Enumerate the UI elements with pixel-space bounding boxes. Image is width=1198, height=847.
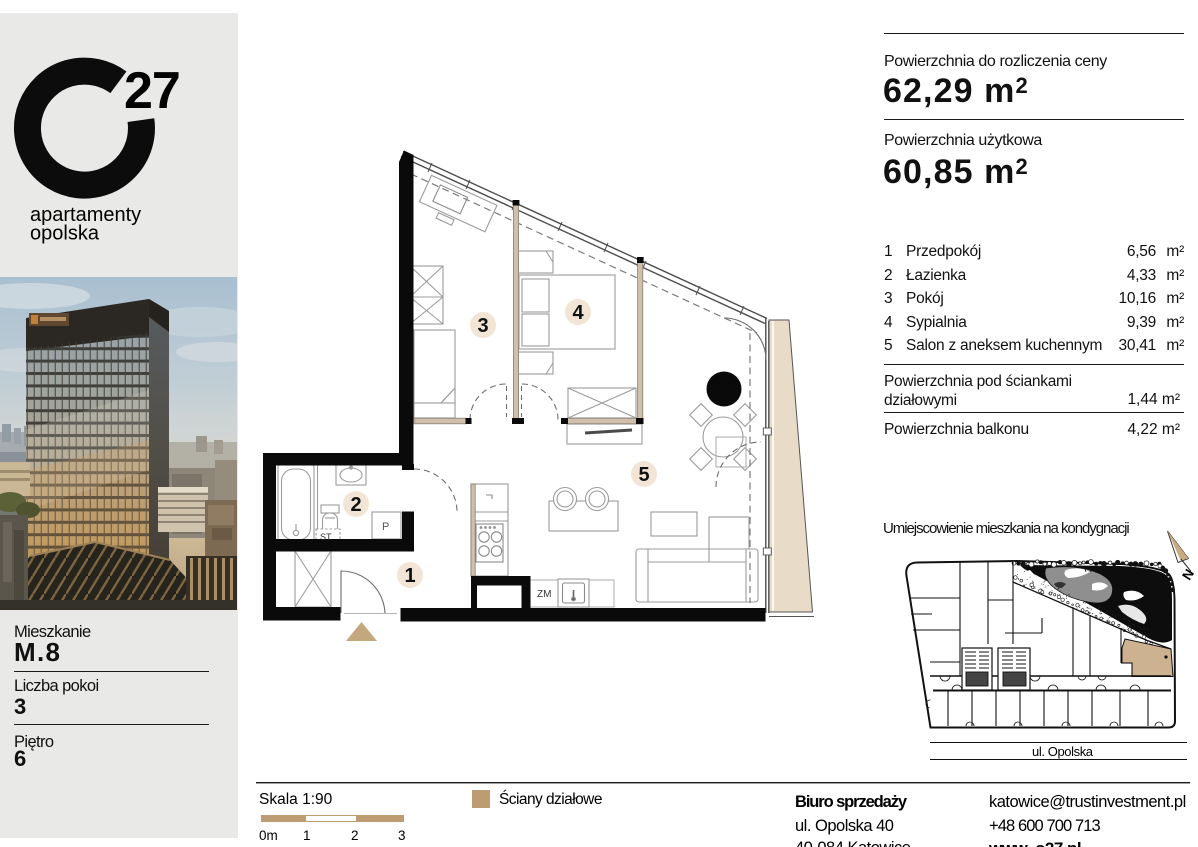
svg-text:27: 27 bbox=[124, 62, 180, 120]
svg-text:0m: 0m bbox=[259, 828, 278, 843]
svg-text:ul. Opolska 40: ul. Opolska 40 bbox=[795, 817, 894, 835]
svg-text:www. o27.pl: www. o27.pl bbox=[988, 839, 1081, 847]
svg-text:2: 2 bbox=[350, 494, 361, 516]
svg-text:ZM: ZM bbox=[537, 589, 551, 600]
svg-text:5: 5 bbox=[638, 464, 649, 486]
svg-text:40-084 Katowice: 40-084 Katowice bbox=[795, 839, 911, 847]
svg-text:4: 4 bbox=[572, 302, 584, 324]
svg-text:3: 3 bbox=[477, 315, 488, 337]
svg-text:opolska: opolska bbox=[30, 223, 100, 245]
svg-text:2: 2 bbox=[351, 828, 359, 843]
svg-text:Skala 1:90: Skala 1:90 bbox=[259, 791, 333, 808]
svg-text:Biuro sprzedaży: Biuro sprzedaży bbox=[795, 793, 908, 811]
svg-text:N: N bbox=[1179, 566, 1197, 582]
svg-text:ST: ST bbox=[320, 532, 332, 542]
svg-text:1: 1 bbox=[303, 828, 311, 843]
svg-text:P: P bbox=[382, 521, 389, 533]
svg-text:Ściany działowe: Ściany działowe bbox=[499, 790, 602, 808]
svg-text:3: 3 bbox=[398, 828, 406, 843]
svg-text:1: 1 bbox=[404, 565, 415, 587]
svg-text:+48 600 700 713: +48 600 700 713 bbox=[989, 817, 1101, 835]
svg-text:katowice@trustinvestment.pl: katowice@trustinvestment.pl bbox=[989, 793, 1186, 811]
svg-text:ul. Opolska: ul. Opolska bbox=[1032, 744, 1094, 759]
